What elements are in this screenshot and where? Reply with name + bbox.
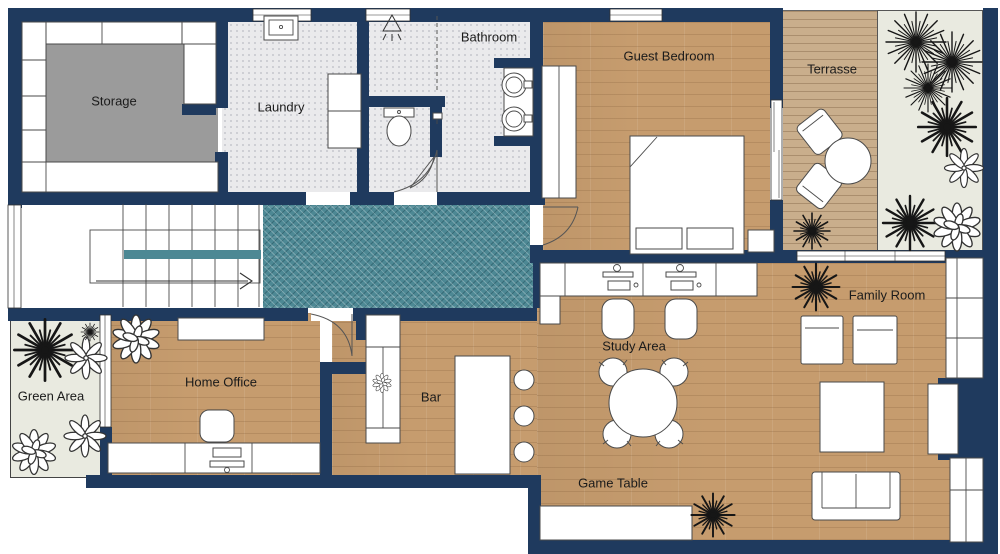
wall-shelf (946, 258, 983, 378)
bar-furniture (366, 315, 534, 474)
room-label-study-area: Study Area (602, 340, 666, 353)
room-label-bathroom: Bathroom (461, 31, 517, 44)
shrub-icon (11, 430, 56, 475)
study-closet (540, 296, 560, 324)
plan-drawing (0, 0, 1000, 554)
washer-dryer-icon (328, 74, 361, 148)
bush-icon (918, 98, 976, 156)
terrasse-furniture (795, 107, 871, 211)
round-game-table (609, 369, 677, 437)
guest-bedroom-door (543, 207, 578, 245)
armchair (801, 316, 843, 364)
room-label-laundry: Laundry (258, 101, 305, 114)
guest-bedroom-furniture (542, 66, 774, 254)
bush-icon (691, 493, 734, 536)
bar-stool (514, 442, 534, 462)
shrub-icon (933, 203, 982, 251)
shrub-icon (112, 315, 161, 363)
window (797, 251, 945, 261)
patio-table (825, 138, 871, 184)
room-label-family-room: Family Room (849, 289, 926, 302)
tree-icon (886, 12, 982, 112)
sideboard (540, 506, 692, 540)
wall-shelf (950, 458, 983, 542)
study-desk (540, 263, 757, 296)
room-label-green-area: Green Area (18, 390, 85, 403)
bar-stool (514, 370, 534, 390)
desk-chair (665, 299, 697, 339)
office-cabinet (178, 318, 264, 340)
office-chair (200, 410, 234, 442)
window (366, 9, 410, 21)
bedroom-closet (542, 66, 576, 198)
bar-counter (455, 356, 510, 474)
window (8, 205, 21, 308)
nightstand (748, 230, 774, 252)
study-furniture (540, 263, 757, 339)
bathroom-sinks-icon (502, 68, 533, 136)
toilet-icon (384, 108, 414, 146)
armchair (853, 316, 897, 364)
room-label-home-office: Home Office (185, 376, 257, 389)
room-label-terrasse: Terrasse (807, 63, 857, 76)
bush-icon (883, 196, 937, 250)
bush-icon (14, 319, 75, 380)
bar-stool (514, 406, 534, 426)
sliding-door (771, 100, 782, 200)
floor-plan: Storage Laundry Bathroom Guest Bedroom T… (0, 0, 1000, 554)
staircase (90, 204, 261, 307)
bush-icon (794, 213, 830, 249)
room-label-bar: Bar (421, 391, 441, 404)
sofa (812, 472, 900, 520)
flower-icon (64, 415, 106, 457)
wc-door (410, 157, 434, 188)
room-label-game-table: Game Table (578, 477, 648, 490)
laundry-sink-icon (264, 16, 298, 40)
game-furniture (540, 358, 692, 540)
desk-chair (602, 299, 634, 339)
window (610, 9, 662, 21)
wall-cabinet (928, 384, 958, 454)
stairs-direction-arrow (96, 273, 252, 289)
room-label-guest-bedroom: Guest Bedroom (623, 50, 714, 63)
laundry-fixtures (264, 16, 361, 148)
bush-icon (793, 264, 840, 311)
monitor-icon (213, 448, 241, 457)
coffee-table (820, 382, 884, 452)
flower-icon (65, 337, 107, 379)
keyboard-icon (210, 461, 244, 467)
bed (630, 136, 744, 254)
room-label-storage: Storage (91, 95, 137, 108)
flower-icon (945, 149, 984, 188)
